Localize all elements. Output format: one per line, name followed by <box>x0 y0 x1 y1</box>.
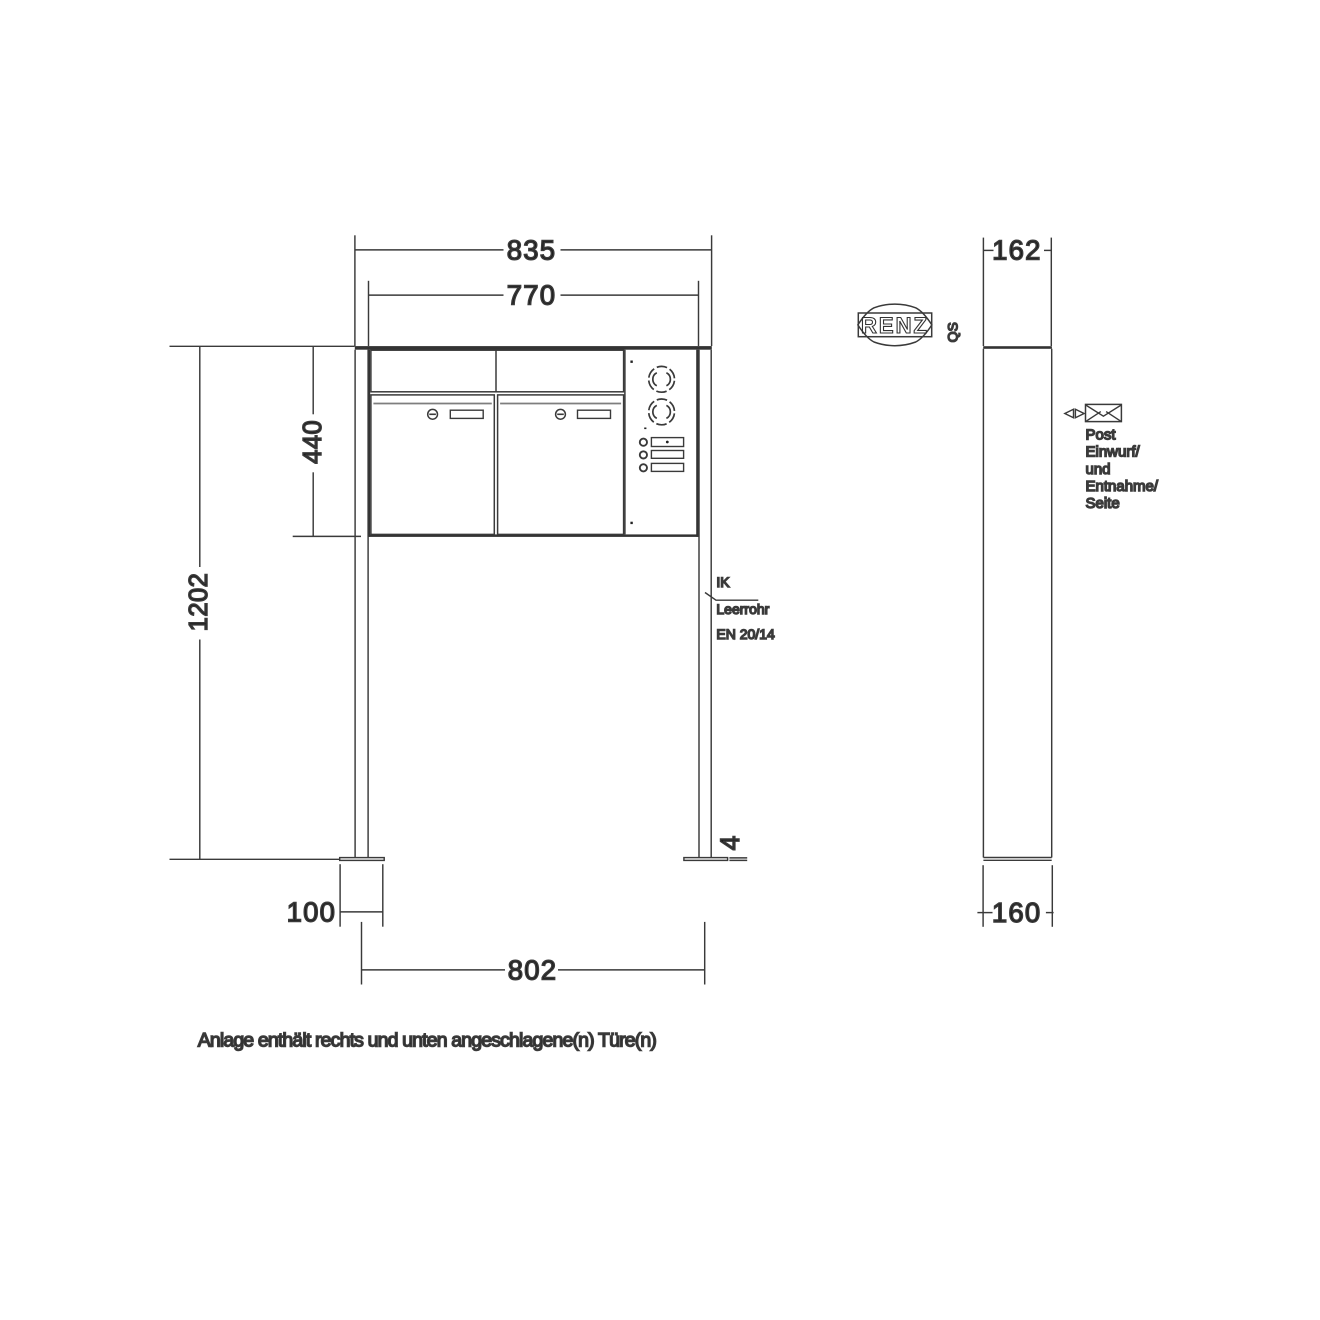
svg-text:440: 440 <box>299 420 327 464</box>
svg-text:Leerrohr: Leerrohr <box>716 601 769 617</box>
svg-text:162: 162 <box>992 235 1041 266</box>
svg-text:Post: Post <box>1086 426 1117 443</box>
svg-text:und: und <box>1086 461 1111 478</box>
svg-text:QS: QS <box>945 322 961 342</box>
svg-text:100: 100 <box>287 896 336 927</box>
svg-text:835: 835 <box>507 234 556 265</box>
svg-text:Seite: Seite <box>1086 495 1120 512</box>
svg-text:770: 770 <box>507 280 556 311</box>
svg-text:1202: 1202 <box>185 573 213 632</box>
svg-text:EN 20/14: EN 20/14 <box>716 626 775 642</box>
svg-text:Einwurf/: Einwurf/ <box>1086 444 1141 461</box>
svg-text:160: 160 <box>992 897 1041 928</box>
svg-text:IK: IK <box>716 574 730 590</box>
svg-text:Anlage enthält rechts und unte: Anlage enthält rechts und unten angeschl… <box>198 1030 657 1052</box>
svg-text:RENZ: RENZ <box>861 313 929 338</box>
svg-text:4: 4 <box>715 836 745 851</box>
svg-text:Entnahme/: Entnahme/ <box>1086 478 1159 495</box>
svg-text:802: 802 <box>508 955 557 986</box>
